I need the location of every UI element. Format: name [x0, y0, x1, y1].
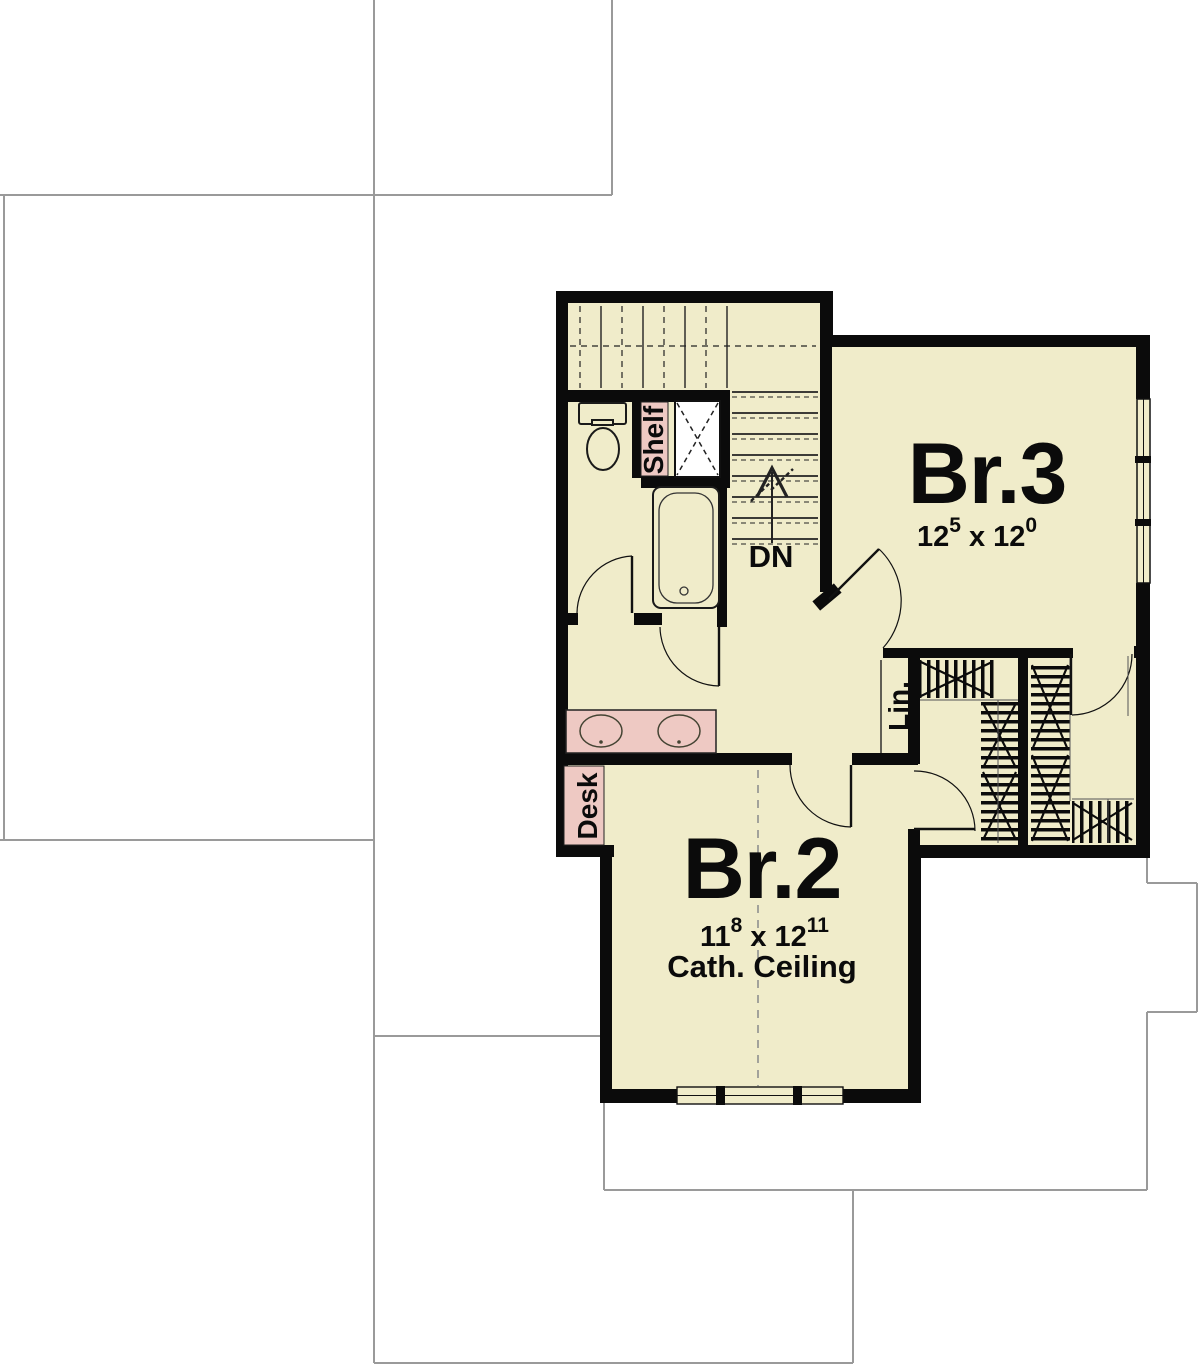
br2-room-name: Br.2: [683, 821, 842, 917]
br2-ceiling-note: Cath. Ceiling: [667, 949, 856, 984]
shower: [675, 401, 720, 477]
shelf-niche: Shelf: [638, 402, 669, 476]
br3-east-window: [1135, 399, 1151, 583]
br2-south-window: [677, 1086, 843, 1105]
br3-room-name: Br.3: [908, 426, 1067, 522]
stairs-dn-label: DN: [749, 539, 794, 574]
desk-nook: Desk: [564, 766, 604, 845]
desk-label: Desk: [572, 772, 603, 839]
double-vanity: [566, 710, 716, 753]
shelf-label: Shelf: [638, 405, 669, 474]
floor-plan-page: Shelf Desk Lin.: [0, 0, 1200, 1367]
floor-plan-svg: Shelf Desk Lin.: [0, 0, 1200, 1367]
linen-label: Lin.: [883, 681, 914, 731]
bathtub: [653, 487, 719, 608]
